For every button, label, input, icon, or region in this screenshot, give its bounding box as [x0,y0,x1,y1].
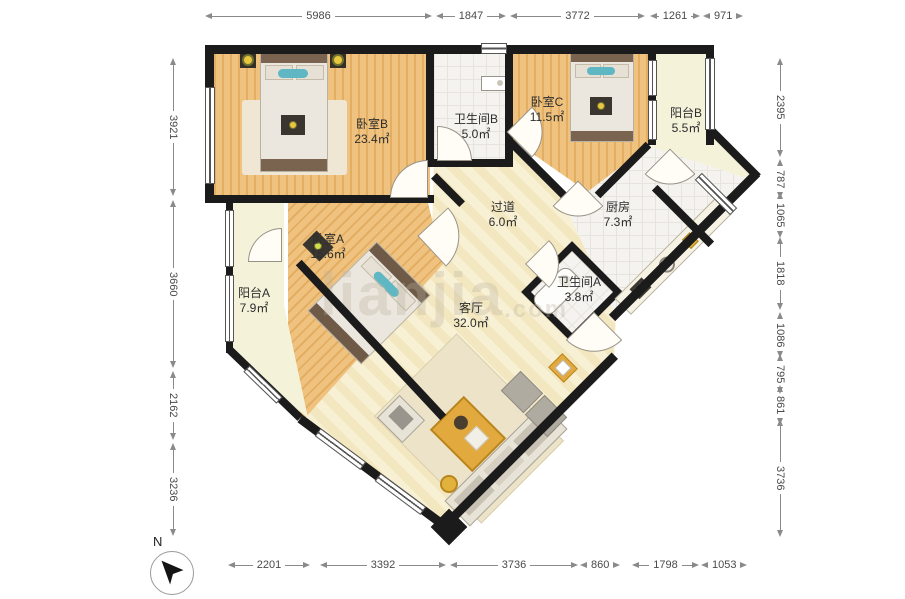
dim-top-2: 1847 [436,10,506,22]
dim-label: 861 [774,392,786,418]
dim-label: 3772 [561,10,593,22]
dim-right-7: 861 [773,385,787,417]
dim-label: 1086 [774,319,786,351]
room-area: 7.9㎡ [238,301,270,316]
bedroomB-bed [260,52,328,172]
label-bedroomB: 卧室B23.4㎡ [354,117,389,147]
dim-left-1: 3921 [166,58,180,196]
bedroomB-nightstand-right [330,52,346,68]
dim-label: 787 [774,166,786,192]
dim-label: 971 [710,10,736,22]
label-bathroomA: 卫生间A3.8㎡ [557,275,601,305]
label-livingroom: 客厅32.0㎡ [453,301,488,331]
room-name: 卧室B [354,117,389,132]
dim-right-3: 1065 [773,192,787,235]
dim-label: 3736 [498,559,530,571]
room-area: 11.5㎡ [530,110,564,125]
dim-right-5: 1086 [773,312,787,352]
label-kitchen: 厨房7.3㎡ [604,200,633,230]
room-area: 7.3㎡ [604,215,633,230]
dim-top-4: 1261 [650,10,700,22]
dim-label: 1818 [774,257,786,289]
dim-label: 1798 [649,559,681,571]
dim-left-2: 3660 [166,200,180,368]
dim-bottom-2: 3392 [320,559,446,571]
label-bathroomB: 卫生间B5.0㎡ [454,112,498,142]
floorplan-page: { "dims": { "top": ["5986","1847","3772"… [0,0,905,590]
label-bedroomA: 卧室A15.6㎡ [310,232,345,262]
bathroomB-washbasin [481,76,507,91]
window-bedroomB-left [205,87,215,184]
dim-label: 3660 [167,268,179,300]
dim-label: 3392 [367,559,399,571]
bedroomB-nightstand-left [240,52,256,68]
dim-top-5: 971 [703,10,739,22]
window-bedroomC-balconyB-1 [648,60,657,96]
dim-label: 1261 [659,10,691,22]
room-name: 阳台B [670,106,702,121]
dim-label: 1065 [774,199,786,231]
dim-left-4: 3236 [166,443,180,536]
room-name: 厨房 [604,200,633,215]
dim-label: 5986 [302,10,334,22]
dim-label: 3236 [167,473,179,505]
livingroom-side-table [440,475,458,493]
dim-label: 2395 [774,91,786,123]
room-area: 5.0㎡ [454,127,498,142]
dim-right-8: 3736 [773,419,787,537]
floorplan-canvas: lianjia .com [200,40,765,545]
dim-right-1: 2395 [773,58,787,157]
dim-top-3: 3772 [510,10,645,22]
dim-bottom-6: 1053 [701,559,741,571]
dim-label: 1053 [708,559,740,571]
bedroomC-bed [570,52,634,142]
window-balconyA-left-2 [225,275,234,342]
window-balconyB-right [705,58,715,130]
room-name: 卫生间A [557,275,601,290]
label-bedroomC: 卧室C11.5㎡ [530,95,564,125]
north-arrow-icon [150,551,194,595]
dim-label: 3921 [167,111,179,143]
watermark: lianjia .com [320,265,568,325]
dim-bottom-5: 1798 [632,559,699,571]
dim-right-2: 787 [773,159,787,190]
dim-bottom-1: 2201 [228,559,310,571]
room-area: 23.4㎡ [354,132,389,147]
dim-label: 2201 [253,559,285,571]
window-balconyA-left-1 [225,210,234,267]
room-name: 过道 [489,200,518,215]
dim-right-4: 1818 [773,237,787,310]
room-name: 卧室C [530,95,564,110]
wall-bedroomB-bathroomB [426,45,434,167]
label-balconyB: 阳台B5.5㎡ [670,106,702,136]
dim-label: 1847 [455,10,487,22]
dim-label: 3736 [774,462,786,494]
north-arrow-glyph [151,552,193,594]
room-area: 15.6㎡ [310,247,345,262]
label-hallway: 过道6.0㎡ [489,200,518,230]
room-area: 32.0㎡ [453,316,488,331]
dim-left-3: 2162 [166,371,180,440]
room-area: 6.0㎡ [489,215,518,230]
room-name: 客厅 [453,301,488,316]
dim-right-6: 795 [773,354,787,383]
window-bedroomC-balconyB-2 [648,100,657,140]
label-balconyA: 阳台A7.9㎡ [238,286,270,316]
dim-label: 2162 [167,389,179,421]
room-name: 卧室A [310,232,345,247]
room-name: 阳台A [238,286,270,301]
dim-label: 860 [587,559,613,571]
wall-outer-top [205,45,713,54]
dim-bottom-4: 860 [580,559,614,571]
room-name: 卫生间B [454,112,498,127]
room-area: 3.8㎡ [557,290,601,305]
dim-bottom-3: 3736 [450,559,578,571]
compass-north-label: N [153,534,162,549]
window-bathroomB-top [481,43,507,54]
dim-label: 795 [774,361,786,387]
room-area: 5.5㎡ [670,121,702,136]
dim-top-1: 5986 [205,10,432,22]
